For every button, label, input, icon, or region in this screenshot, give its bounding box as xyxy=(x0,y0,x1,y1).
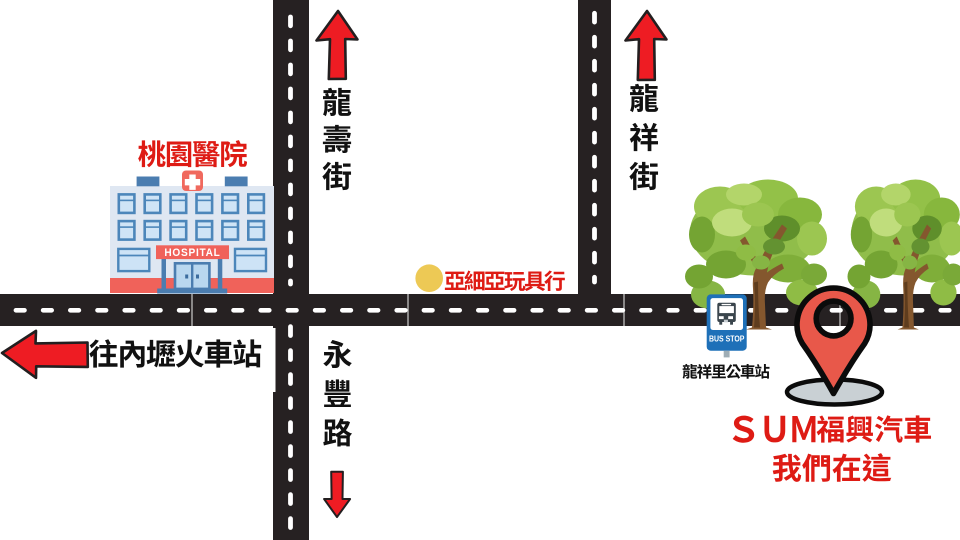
svg-text:HOSPITAL: HOSPITAL xyxy=(164,247,220,259)
svg-text:BUS STOP: BUS STOP xyxy=(709,334,744,344)
